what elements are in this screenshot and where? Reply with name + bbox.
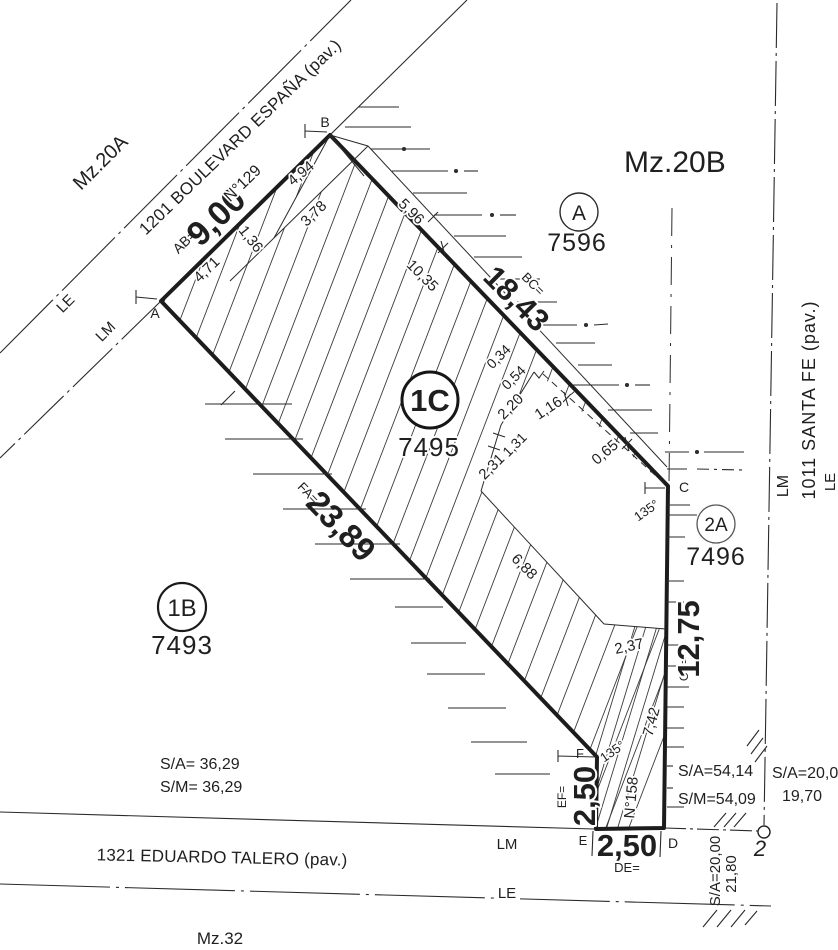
svg-text:S/A=20,00: S/A=20,00 xyxy=(707,836,724,906)
svg-text:S/A=54,14: S/A=54,14 xyxy=(678,763,753,780)
svg-text:S/A=20,00: S/A=20,00 xyxy=(772,765,838,782)
svg-text:1011 SANTA FE (pav.): 1011 SANTA FE (pav.) xyxy=(799,300,819,499)
svg-text:S/M= 36,29: S/M= 36,29 xyxy=(160,779,242,796)
svg-text:7596: 7596 xyxy=(547,229,607,257)
svg-text:F: F xyxy=(576,746,584,761)
svg-text:12,75: 12,75 xyxy=(671,600,706,678)
svg-text:B: B xyxy=(320,114,329,130)
svg-text:1B: 1B xyxy=(167,595,196,622)
svg-text:LE: LE xyxy=(822,473,838,491)
svg-text:1C: 1C xyxy=(410,383,450,418)
svg-text:DE=: DE= xyxy=(614,860,640,875)
svg-text:2,50: 2,50 xyxy=(567,766,602,826)
svg-text:7496: 7496 xyxy=(686,543,746,571)
svg-text:LM: LM xyxy=(497,836,518,853)
svg-text:LM: LM xyxy=(775,475,792,497)
svg-text:7493: 7493 xyxy=(151,630,213,660)
svg-text:Mz.32: Mz.32 xyxy=(197,929,243,948)
svg-text:N°158: N°158 xyxy=(621,776,642,819)
svg-text:S/M=54,09: S/M=54,09 xyxy=(678,791,756,808)
svg-text:A: A xyxy=(150,305,160,321)
svg-text:2: 2 xyxy=(753,836,766,861)
svg-text:D: D xyxy=(668,835,678,851)
svg-text:LE: LE xyxy=(498,885,516,902)
svg-text:S/A= 36,29: S/A= 36,29 xyxy=(160,756,240,773)
svg-text:21,80: 21,80 xyxy=(723,855,740,893)
svg-text:C: C xyxy=(679,479,689,495)
svg-text:19,70: 19,70 xyxy=(782,788,822,805)
svg-text:2,50: 2,50 xyxy=(597,828,657,863)
svg-text:7495: 7495 xyxy=(398,432,460,462)
svg-text:Mz.20B: Mz.20B xyxy=(624,146,726,179)
svg-text:E: E xyxy=(579,833,588,848)
svg-text:2A: 2A xyxy=(704,515,728,536)
svg-text:A: A xyxy=(572,202,586,225)
